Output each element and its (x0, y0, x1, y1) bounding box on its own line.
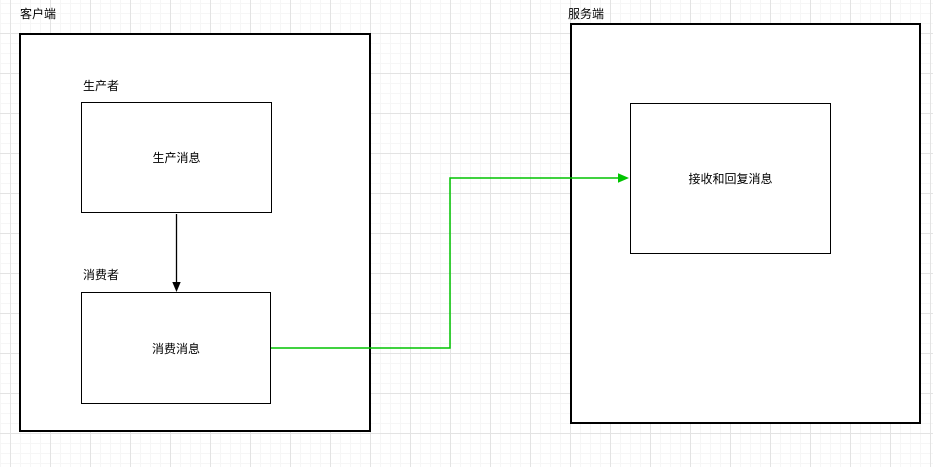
producer-label: 生产者 (83, 79, 119, 93)
produce-message-node-text: 生产消息 (152, 149, 200, 166)
diagram-canvas: 客户端 服务端 生产者 消费者 生产消息 消费消息 接收和回复消息 (0, 0, 933, 467)
consume-message-node-text: 消费消息 (152, 340, 200, 357)
consumer-label: 消费者 (83, 268, 119, 282)
receive-reply-message-node[interactable]: 接收和回复消息 (630, 103, 831, 254)
consume-message-node[interactable]: 消费消息 (81, 292, 271, 404)
produce-message-node[interactable]: 生产消息 (81, 102, 272, 213)
server-container-label: 服务端 (568, 7, 604, 21)
client-container-label: 客户端 (20, 7, 56, 21)
receive-reply-message-node-text: 接收和回复消息 (688, 170, 772, 187)
